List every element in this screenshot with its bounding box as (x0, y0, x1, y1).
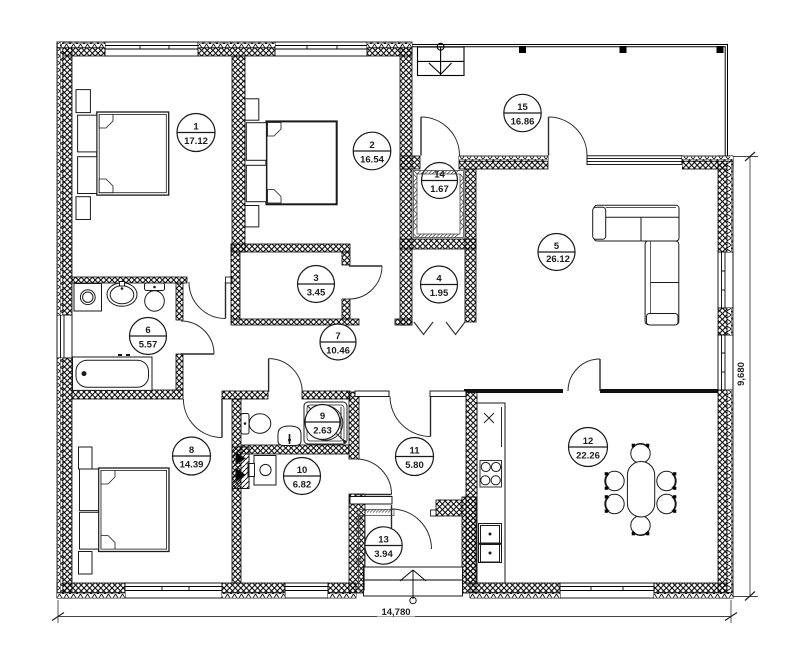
svg-text:11: 11 (409, 446, 420, 457)
svg-text:4: 4 (436, 274, 442, 285)
svg-text:2: 2 (369, 140, 374, 151)
svg-text:9,680: 9,680 (736, 362, 747, 386)
svg-text:1: 1 (193, 122, 199, 133)
svg-text:3: 3 (313, 273, 318, 284)
svg-text:10: 10 (297, 465, 308, 476)
svg-text:3.45: 3.45 (307, 288, 326, 299)
svg-text:1.95: 1.95 (430, 288, 449, 299)
svg-text:14,780: 14,780 (381, 607, 410, 618)
svg-text:14: 14 (434, 170, 445, 181)
svg-text:5: 5 (554, 241, 560, 252)
svg-text:15: 15 (517, 102, 528, 113)
svg-text:6.82: 6.82 (293, 480, 312, 491)
svg-text:5.57: 5.57 (139, 340, 158, 351)
svg-text:7: 7 (335, 331, 340, 342)
svg-text:8: 8 (189, 445, 194, 456)
svg-text:10.46: 10.46 (326, 346, 350, 357)
svg-text:17.12: 17.12 (184, 136, 208, 147)
svg-text:6: 6 (145, 325, 150, 336)
svg-text:16.54: 16.54 (360, 155, 384, 166)
svg-text:26.12: 26.12 (546, 254, 570, 265)
svg-text:16.86: 16.86 (511, 117, 535, 128)
svg-text:22.26: 22.26 (576, 451, 600, 462)
svg-text:9: 9 (320, 411, 325, 422)
svg-text:12: 12 (583, 436, 594, 447)
svg-text:1.67: 1.67 (430, 184, 449, 195)
svg-text:13: 13 (378, 535, 389, 546)
svg-text:14.39: 14.39 (180, 460, 204, 471)
svg-text:5.80: 5.80 (405, 460, 424, 471)
svg-text:3.94: 3.94 (374, 549, 393, 560)
svg-text:2.63: 2.63 (313, 426, 332, 437)
